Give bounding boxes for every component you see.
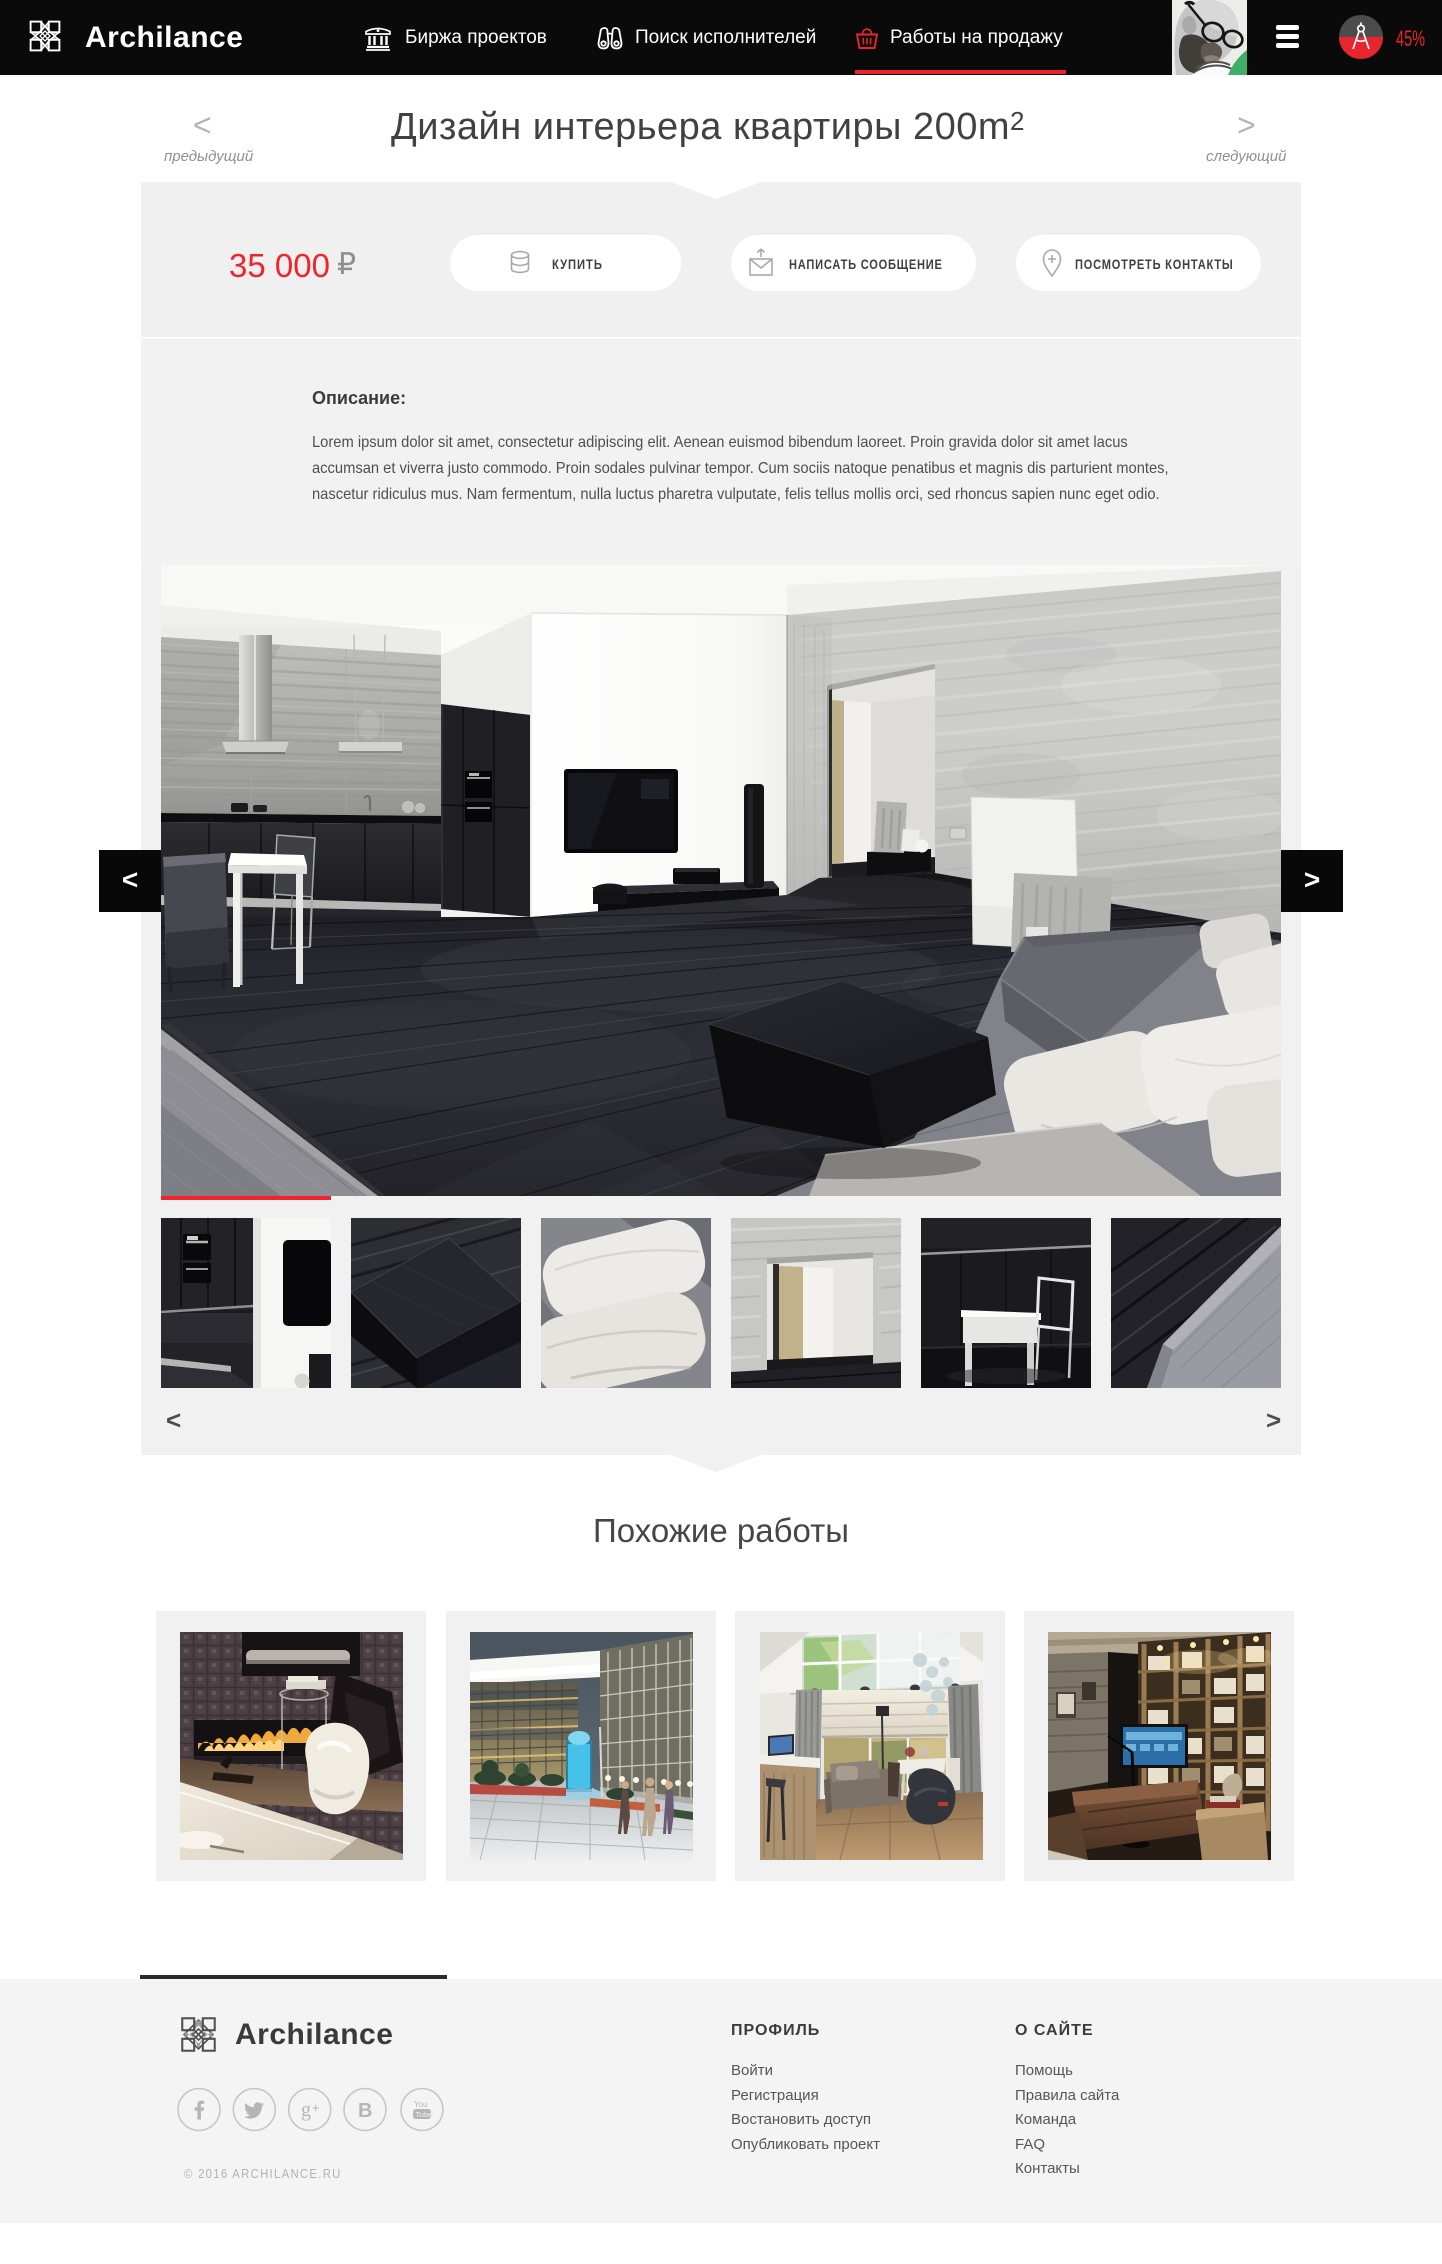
svg-text:You: You: [414, 2100, 428, 2109]
svg-text:g: g: [301, 2099, 311, 2121]
svg-text:+: +: [312, 2100, 320, 2115]
svg-text:Tube: Tube: [416, 2110, 433, 2119]
svg-text:B: B: [358, 2100, 372, 2122]
